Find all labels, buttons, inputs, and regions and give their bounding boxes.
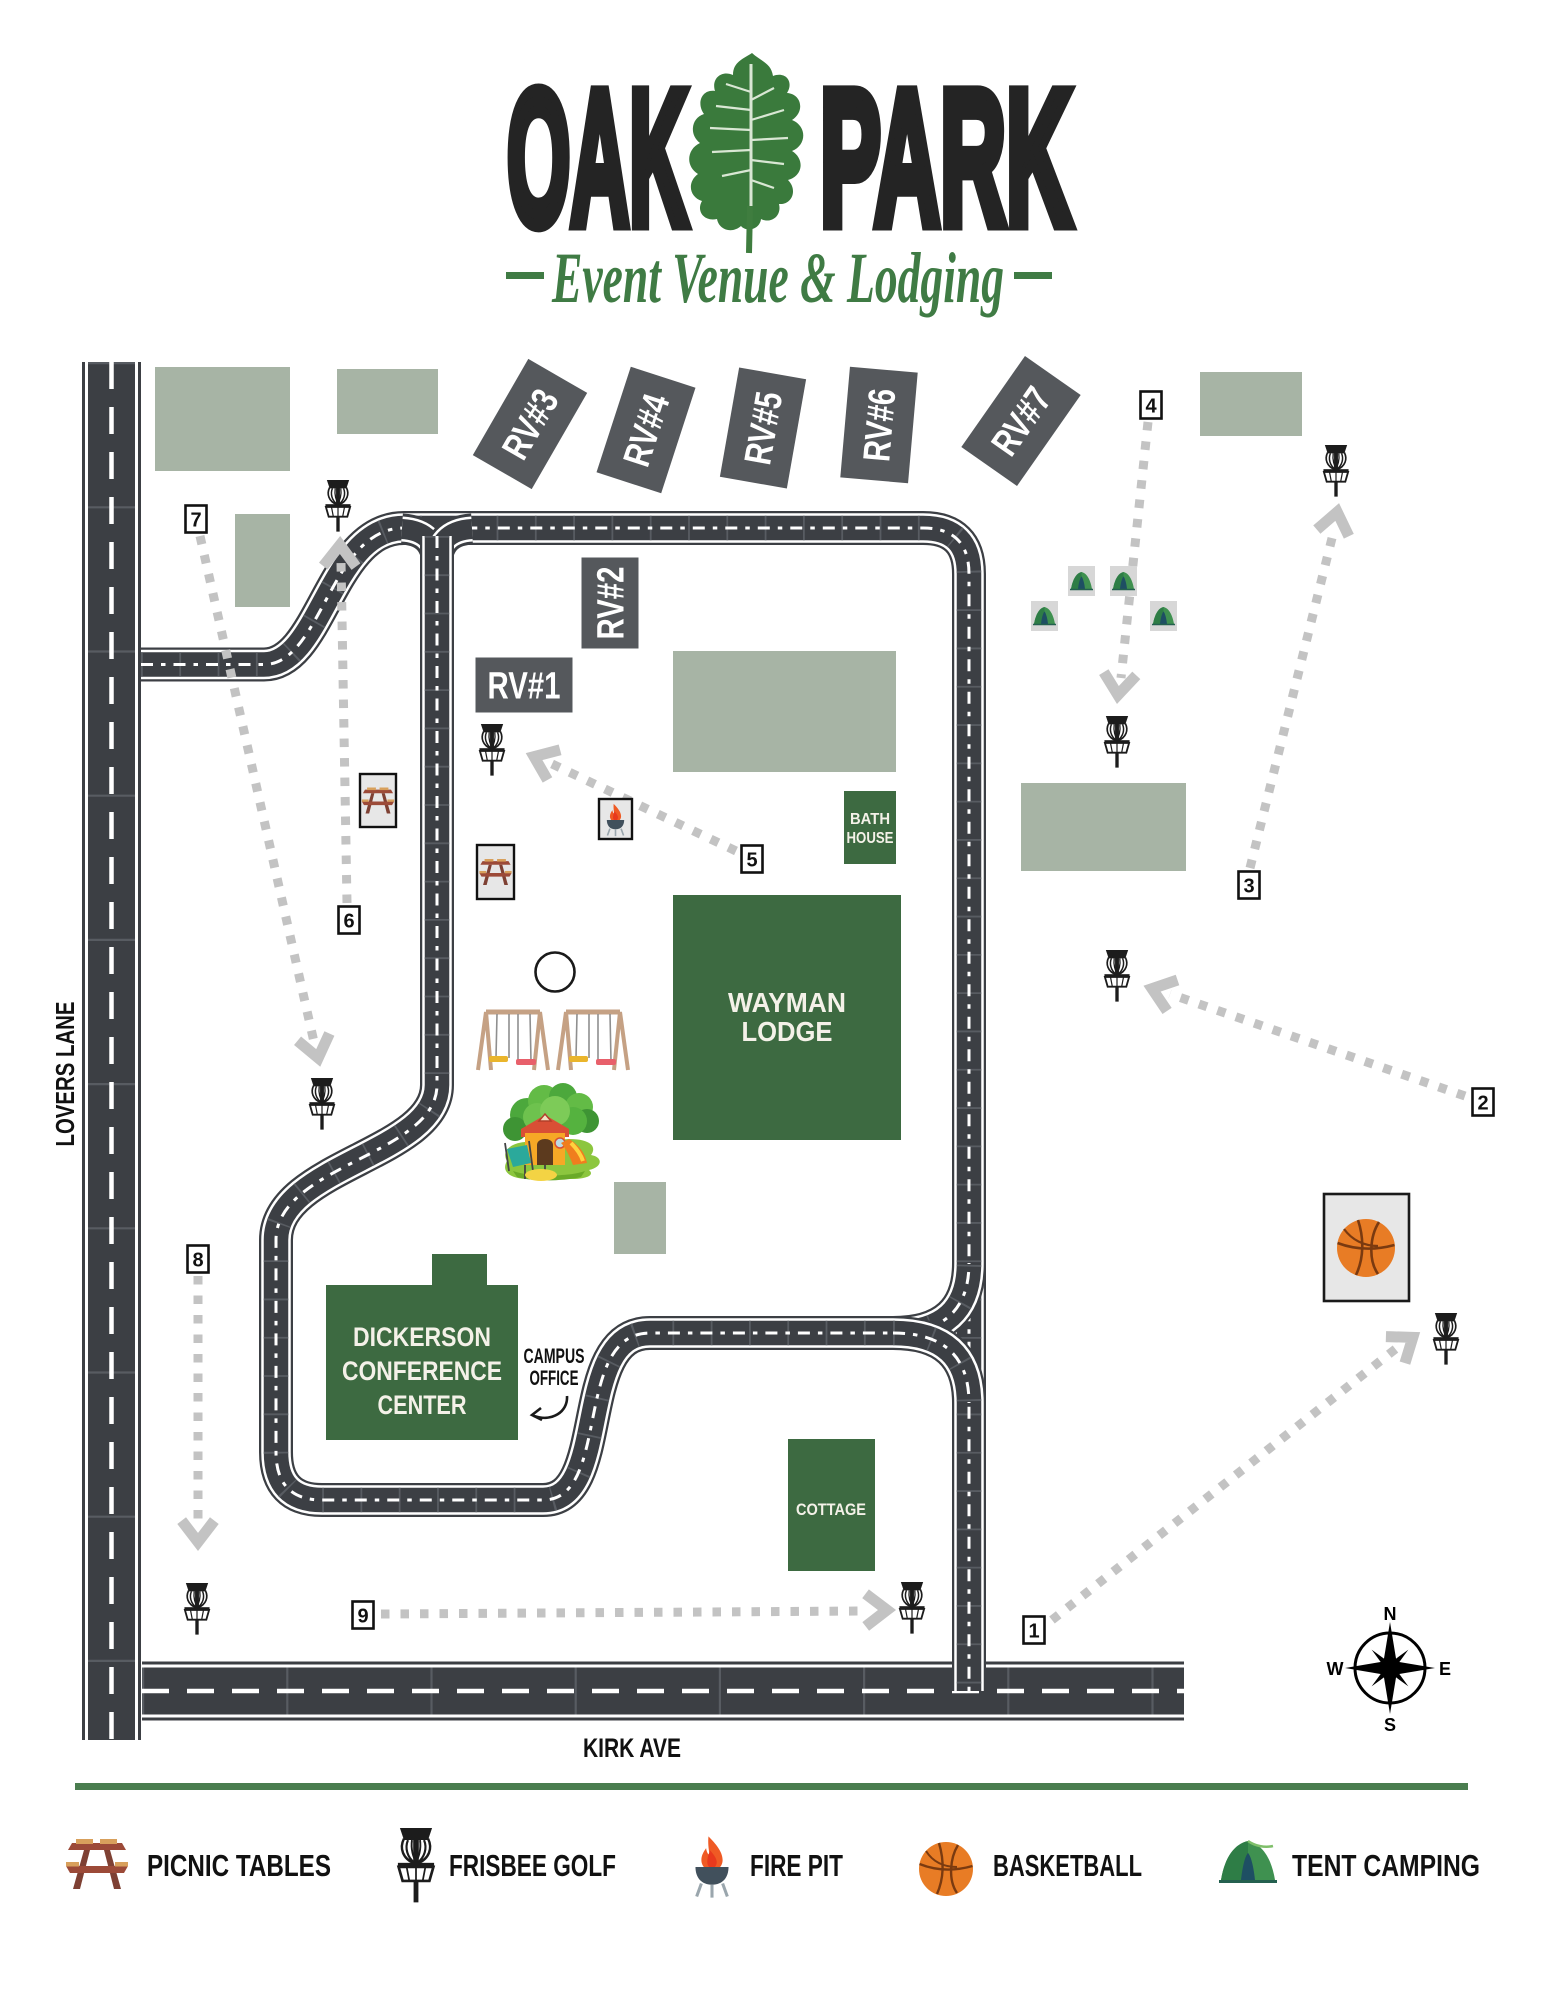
svg-text:8: 8 [192,1250,203,1272]
svg-text:1: 1 [1028,1621,1039,1643]
svg-text:FRISBEE GOLF: FRISBEE GOLF [449,1848,616,1883]
svg-text:RV#1: RV#1 [488,665,561,707]
svg-text:OFFICE: OFFICE [530,1367,579,1390]
svg-text:4: 4 [1145,396,1157,418]
svg-text:RV#2: RV#2 [590,567,632,640]
svg-text:CAMPUS: CAMPUS [524,1345,585,1368]
svg-text:DICKERSON: DICKERSON [353,1322,491,1352]
svg-text:9: 9 [357,1606,368,1628]
svg-text:S: S [1384,1715,1396,1735]
svg-text:5: 5 [746,850,757,872]
svg-text:RV#6: RV#6 [856,387,904,463]
svg-text:COTTAGE: COTTAGE [796,1500,866,1519]
svg-text:W: W [1327,1659,1344,1679]
svg-text:PICNIC TABLES: PICNIC TABLES [147,1848,331,1883]
svg-text:FIRE PIT: FIRE PIT [750,1848,843,1883]
svg-text:OAK: OAK [507,50,688,265]
svg-text:TENT CAMPING: TENT CAMPING [1292,1848,1480,1883]
svg-text:E: E [1439,1659,1451,1679]
svg-text:CONFERENCE: CONFERENCE [342,1356,502,1386]
svg-text:7: 7 [190,510,201,532]
svg-text:LODGE: LODGE [742,1016,833,1047]
svg-text:CENTER: CENTER [378,1390,467,1420]
svg-text:LOVERS LANE: LOVERS LANE [50,1002,80,1147]
svg-text:3: 3 [1243,876,1254,898]
svg-text:WAYMAN: WAYMAN [728,987,846,1018]
svg-text:BATH: BATH [850,811,890,828]
svg-text:Event Venue & Lodging: Event Venue & Lodging [551,238,1004,318]
svg-text:KIRK AVE: KIRK AVE [583,1733,681,1763]
svg-text:BASKETBALL: BASKETBALL [993,1848,1142,1883]
svg-text:6: 6 [343,911,354,933]
svg-text:N: N [1384,1604,1397,1624]
svg-text:PARK: PARK [820,50,1072,265]
svg-text:2: 2 [1477,1093,1488,1115]
svg-text:HOUSE: HOUSE [847,830,894,847]
